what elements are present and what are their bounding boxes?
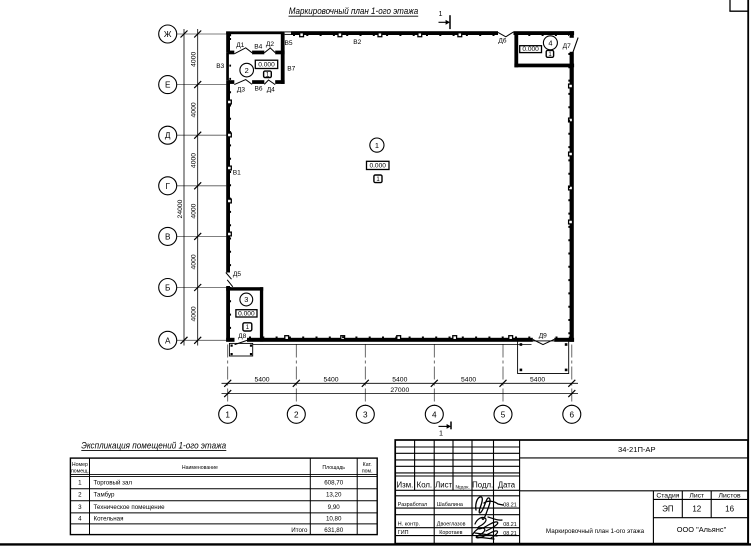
svg-text:ООО "Альянс": ООО "Альянс" — [677, 525, 727, 534]
svg-text:Разработал: Разработал — [398, 502, 427, 508]
svg-text:0.000: 0.000 — [238, 311, 255, 318]
svg-text:08.21: 08.21 — [503, 502, 517, 508]
svg-text:Д3: Д3 — [237, 86, 245, 93]
svg-text:В7: В7 — [287, 66, 295, 73]
svg-text:Листов: Листов — [719, 493, 741, 500]
svg-text:В5: В5 — [284, 40, 292, 47]
svg-text:Лист: Лист — [435, 481, 452, 490]
svg-text:Экспликация помещений 1-ого эт: Экспликация помещений 1-ого этажа — [81, 441, 226, 451]
svg-text:4: 4 — [432, 410, 437, 419]
svg-text:08.21: 08.21 — [503, 531, 517, 537]
svg-text:0.000: 0.000 — [522, 46, 539, 53]
svg-text:5400: 5400 — [254, 376, 269, 383]
svg-text:4000: 4000 — [191, 306, 198, 321]
svg-text:ЭП: ЭП — [662, 505, 674, 514]
svg-text:В1: В1 — [233, 170, 241, 177]
svg-text:Техническое помещение: Техническое помещение — [94, 504, 166, 511]
svg-text:5: 5 — [501, 410, 506, 419]
svg-text:Д8: Д8 — [238, 333, 246, 340]
svg-text:Кол.: Кол. — [417, 481, 432, 490]
svg-text:5400: 5400 — [323, 376, 338, 383]
svg-text:27000: 27000 — [390, 387, 409, 394]
svg-text:Д9: Д9 — [539, 333, 547, 340]
svg-text:3: 3 — [78, 504, 82, 511]
svg-text:1: 1 — [225, 410, 230, 419]
svg-text:5400: 5400 — [530, 376, 545, 383]
svg-text:4000: 4000 — [191, 153, 198, 168]
svg-text:16: 16 — [725, 505, 734, 514]
svg-text:В4: В4 — [254, 44, 262, 51]
svg-text:9,90: 9,90 — [328, 504, 341, 511]
svg-text:3: 3 — [363, 410, 368, 419]
svg-text:Котельная: Котельная — [94, 516, 124, 523]
svg-text:5400: 5400 — [461, 376, 476, 383]
svg-text:Д1: Д1 — [236, 42, 244, 49]
svg-text:3: 3 — [244, 295, 248, 304]
svg-text:Тамбур: Тамбур — [94, 492, 116, 499]
svg-text:1: 1 — [439, 428, 443, 437]
svg-text:Д6: Д6 — [498, 38, 506, 45]
svg-text:13,20: 13,20 — [326, 492, 342, 499]
svg-text:Номер: Номер — [72, 462, 88, 468]
svg-text:Двоеглазов: Двоеглазов — [437, 521, 466, 527]
svg-text:08.21: 08.21 — [503, 522, 517, 528]
svg-text:В6: В6 — [254, 85, 262, 92]
svg-text:4000: 4000 — [191, 254, 198, 269]
svg-text:4: 4 — [548, 39, 552, 48]
svg-text:34-21П-АР: 34-21П-АР — [618, 445, 656, 454]
svg-text:0.000: 0.000 — [258, 62, 275, 69]
svg-text:В2: В2 — [353, 39, 361, 46]
svg-text:2: 2 — [78, 492, 82, 499]
svg-text:Д2: Д2 — [266, 41, 274, 48]
svg-text:Г: Г — [165, 182, 170, 191]
svg-text:Изм.: Изм. — [397, 481, 414, 490]
svg-text:6: 6 — [570, 410, 575, 419]
svg-text:помещ.: помещ. — [71, 468, 89, 474]
svg-text:Н. контр.: Н. контр. — [398, 521, 420, 527]
svg-text:Итого: Итого — [291, 527, 308, 534]
svg-text:Наименование: Наименование — [182, 465, 218, 471]
svg-text:Б: Б — [165, 284, 170, 293]
svg-text:24000: 24000 — [177, 199, 184, 218]
svg-text:4: 4 — [78, 516, 82, 523]
svg-text:В: В — [165, 232, 171, 241]
svg-text:2: 2 — [245, 66, 249, 75]
svg-text:10,80: 10,80 — [326, 516, 342, 523]
svg-text:Д7: Д7 — [563, 43, 571, 50]
svg-text:В3: В3 — [216, 63, 224, 70]
svg-text:Подл.: Подл. — [472, 481, 493, 490]
svg-text:631,80: 631,80 — [324, 527, 343, 534]
svg-text:0.000: 0.000 — [369, 163, 386, 170]
svg-text:1: 1 — [375, 141, 379, 150]
svg-text:Е: Е — [165, 81, 171, 90]
svg-text:Стадия: Стадия — [656, 493, 679, 500]
svg-text:Лист: Лист — [689, 493, 704, 500]
svg-text:Площадь: Площадь — [322, 465, 345, 471]
svg-text:2: 2 — [294, 410, 299, 419]
svg-text:Д: Д — [165, 131, 171, 140]
svg-text:4000: 4000 — [191, 203, 198, 218]
svg-text:12: 12 — [692, 505, 701, 514]
svg-text:4000: 4000 — [191, 102, 198, 117]
svg-text:А: А — [165, 336, 171, 345]
svg-text:Шабалина: Шабалина — [437, 502, 463, 508]
svg-text:1: 1 — [439, 9, 443, 18]
svg-text:Кат.: Кат. — [363, 462, 372, 468]
svg-text:Дата: Дата — [498, 481, 516, 490]
svg-text:№док.: №док. — [455, 484, 469, 490]
svg-text:пом.: пом. — [362, 468, 373, 474]
svg-text:608,70: 608,70 — [324, 480, 343, 487]
svg-text:1: 1 — [78, 480, 82, 487]
svg-text:Маркировочный план 1-ого этажа: Маркировочный план 1-ого этажа — [546, 527, 645, 535]
svg-text:Торговый зал: Торговый зал — [94, 480, 133, 487]
svg-text:Коротаев: Коротаев — [439, 530, 462, 536]
svg-text:4000: 4000 — [191, 52, 198, 67]
svg-text:ГИП: ГИП — [398, 530, 409, 536]
svg-text:Д5: Д5 — [233, 271, 241, 278]
svg-text:Д4: Д4 — [267, 86, 275, 93]
svg-text:Маркировочный план 1-ого этажа: Маркировочный план 1-ого этажа — [289, 6, 419, 16]
svg-text:5400: 5400 — [392, 376, 407, 383]
svg-text:Ж: Ж — [164, 30, 172, 39]
